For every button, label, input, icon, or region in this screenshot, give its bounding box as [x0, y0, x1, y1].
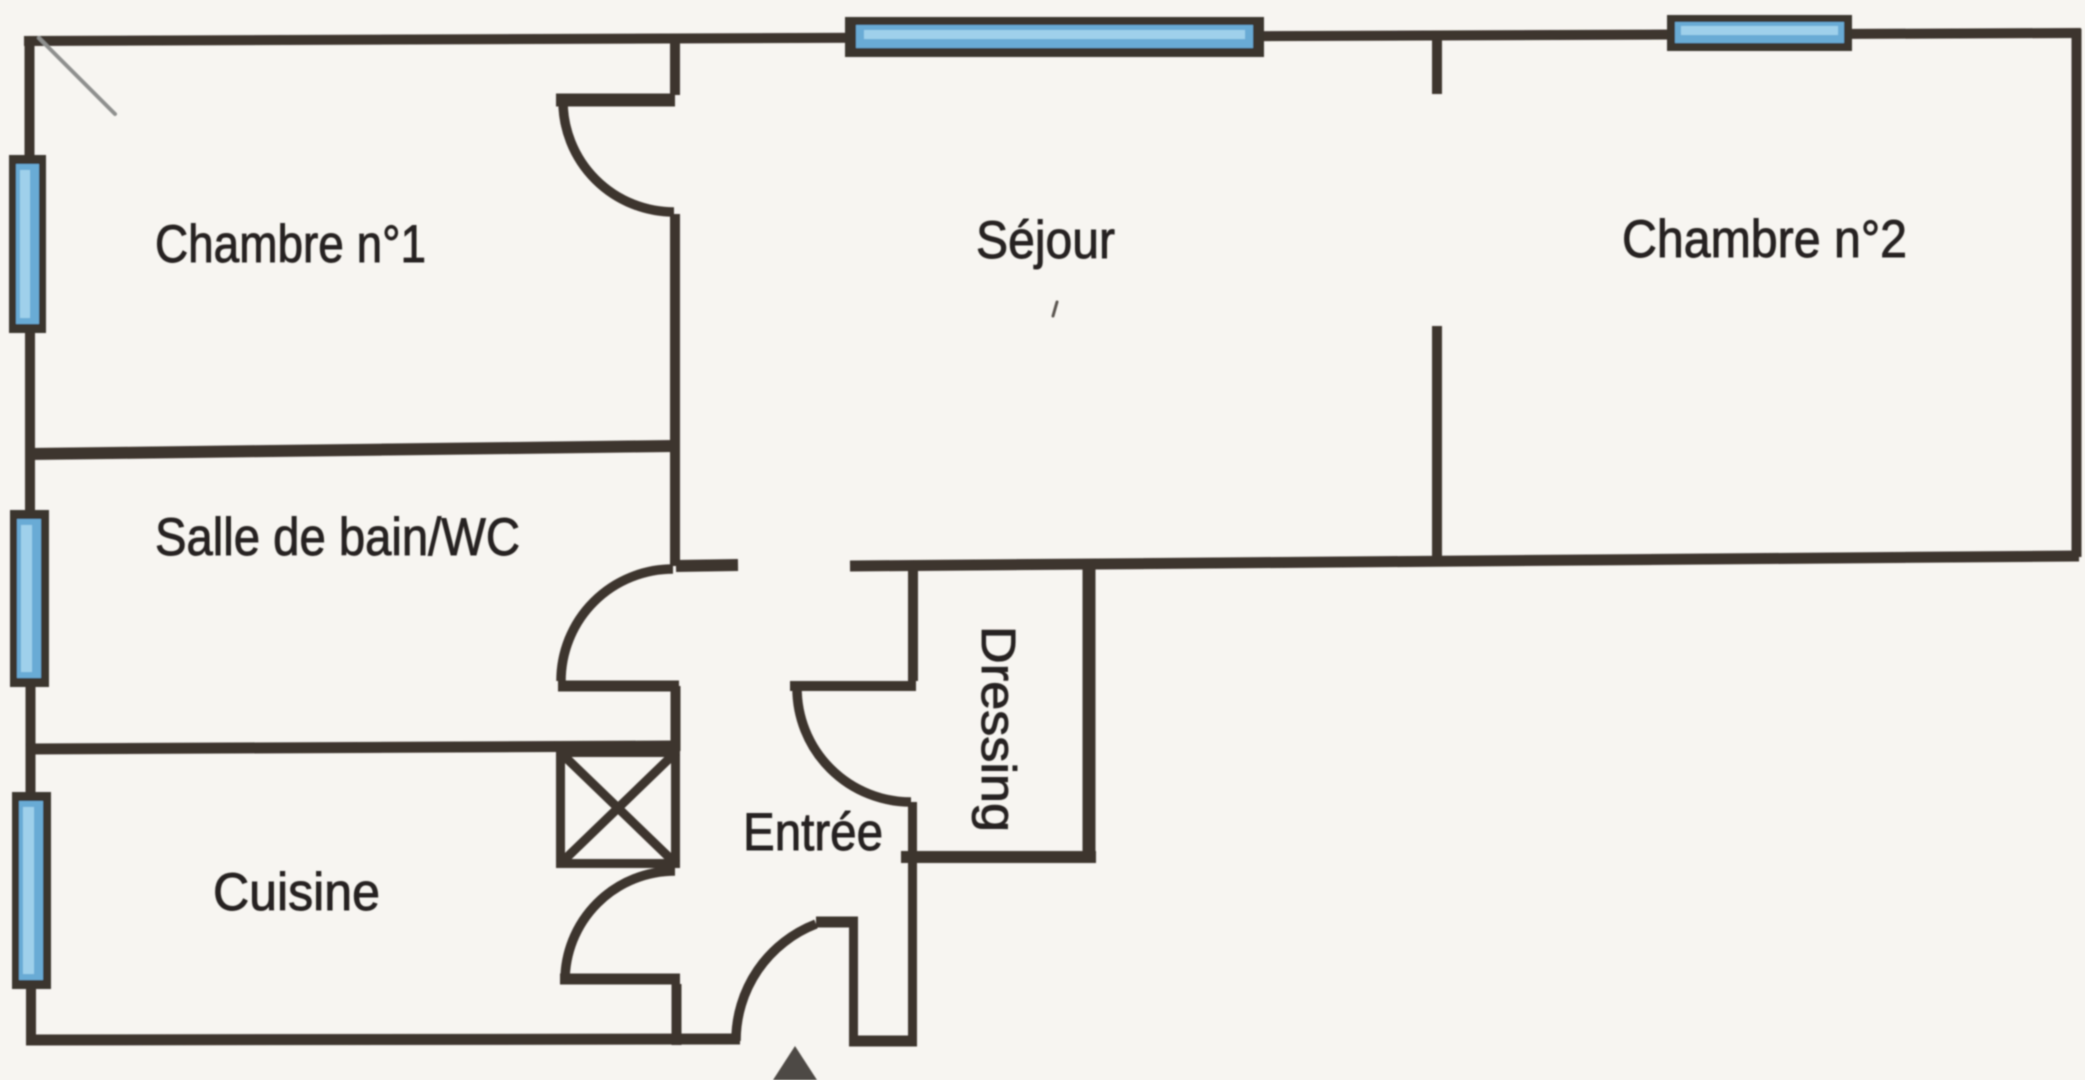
svg-text:Séjour: Séjour	[976, 211, 1115, 270]
svg-text:Dressing: Dressing	[971, 626, 1024, 832]
svg-text:Cuisine: Cuisine	[213, 863, 380, 922]
svg-text:Entrée: Entrée	[743, 803, 883, 862]
svg-text:Chambre n°1: Chambre n°1	[155, 215, 426, 274]
svg-text:Chambre n°2: Chambre n°2	[1622, 210, 1907, 269]
svg-text:Salle de bain/WC: Salle de bain/WC	[155, 508, 520, 567]
